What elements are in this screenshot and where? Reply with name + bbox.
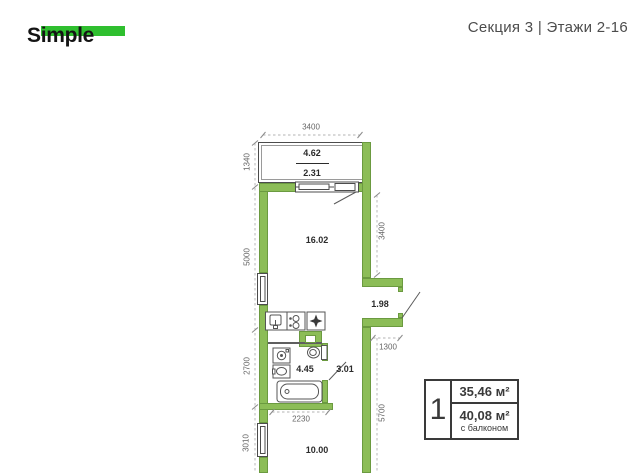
bathroom-sink-icon: [273, 365, 291, 378]
dimension-label: 3400: [302, 123, 320, 132]
area-with-balcony-value: 40,08 м²: [459, 409, 509, 423]
area-label-balcony-reduced: 2.31: [303, 168, 321, 178]
apartment-info-box: 1 35,46 м² 40,08 м² с балконом: [424, 379, 519, 440]
wall: [259, 457, 268, 473]
dimension-label: 5000: [243, 248, 252, 266]
area-note: с балконом: [461, 423, 508, 433]
wall: [259, 403, 333, 410]
balcony-fraction-line: [296, 163, 329, 164]
wall: [322, 380, 328, 403]
wall: [259, 183, 268, 273]
dimension-label: 2230: [292, 415, 310, 424]
wall: [259, 183, 296, 192]
dimension-label: 2700: [243, 357, 252, 375]
kitchen-counter: [266, 312, 306, 330]
bathtub-icon: [277, 381, 322, 402]
logo: Simple: [27, 24, 94, 48]
kitchen-sink-icon: [270, 315, 281, 329]
wall: [362, 327, 371, 473]
floor-plan: 4.62 2.31 16.02 1.98 4.45 3.01 10.00 340…: [0, 0, 640, 473]
vent-icon: [307, 312, 325, 330]
wall: [322, 343, 328, 361]
wall: [362, 318, 403, 327]
washing-machine-icon: [273, 348, 290, 363]
wall: [362, 278, 403, 287]
dimension-label: 1340: [243, 153, 252, 171]
dimension-label: 5700: [378, 404, 387, 422]
dimension-label: 1300: [379, 343, 397, 352]
area-main-value: 35,46 м²: [452, 381, 517, 404]
area-label-entry: 1.98: [371, 299, 389, 309]
area-label-hall: 3.01: [336, 364, 354, 374]
stove-icon: [290, 316, 299, 329]
area-with-balcony-cell: 40,08 м² с балконом: [452, 404, 517, 438]
vent-shaft-inner: [305, 335, 316, 343]
dimension-label: 3010: [242, 434, 251, 452]
area-label-balcony-full: 4.62: [303, 148, 321, 158]
wall: [362, 142, 371, 278]
area-label-living: 16.02: [306, 235, 329, 245]
floorplan-page: Simple Секция 3 | Этажи 2-16: [0, 0, 640, 473]
balcony-door-swing: [334, 192, 356, 204]
area-label-bathroom: 4.45: [296, 364, 314, 374]
dimension-label: 3400: [378, 222, 387, 240]
door-jamb: [398, 287, 403, 292]
area-label-kitchen: 10.00: [306, 445, 329, 455]
rooms-count: 1: [426, 381, 452, 438]
window-icon: [296, 182, 359, 192]
